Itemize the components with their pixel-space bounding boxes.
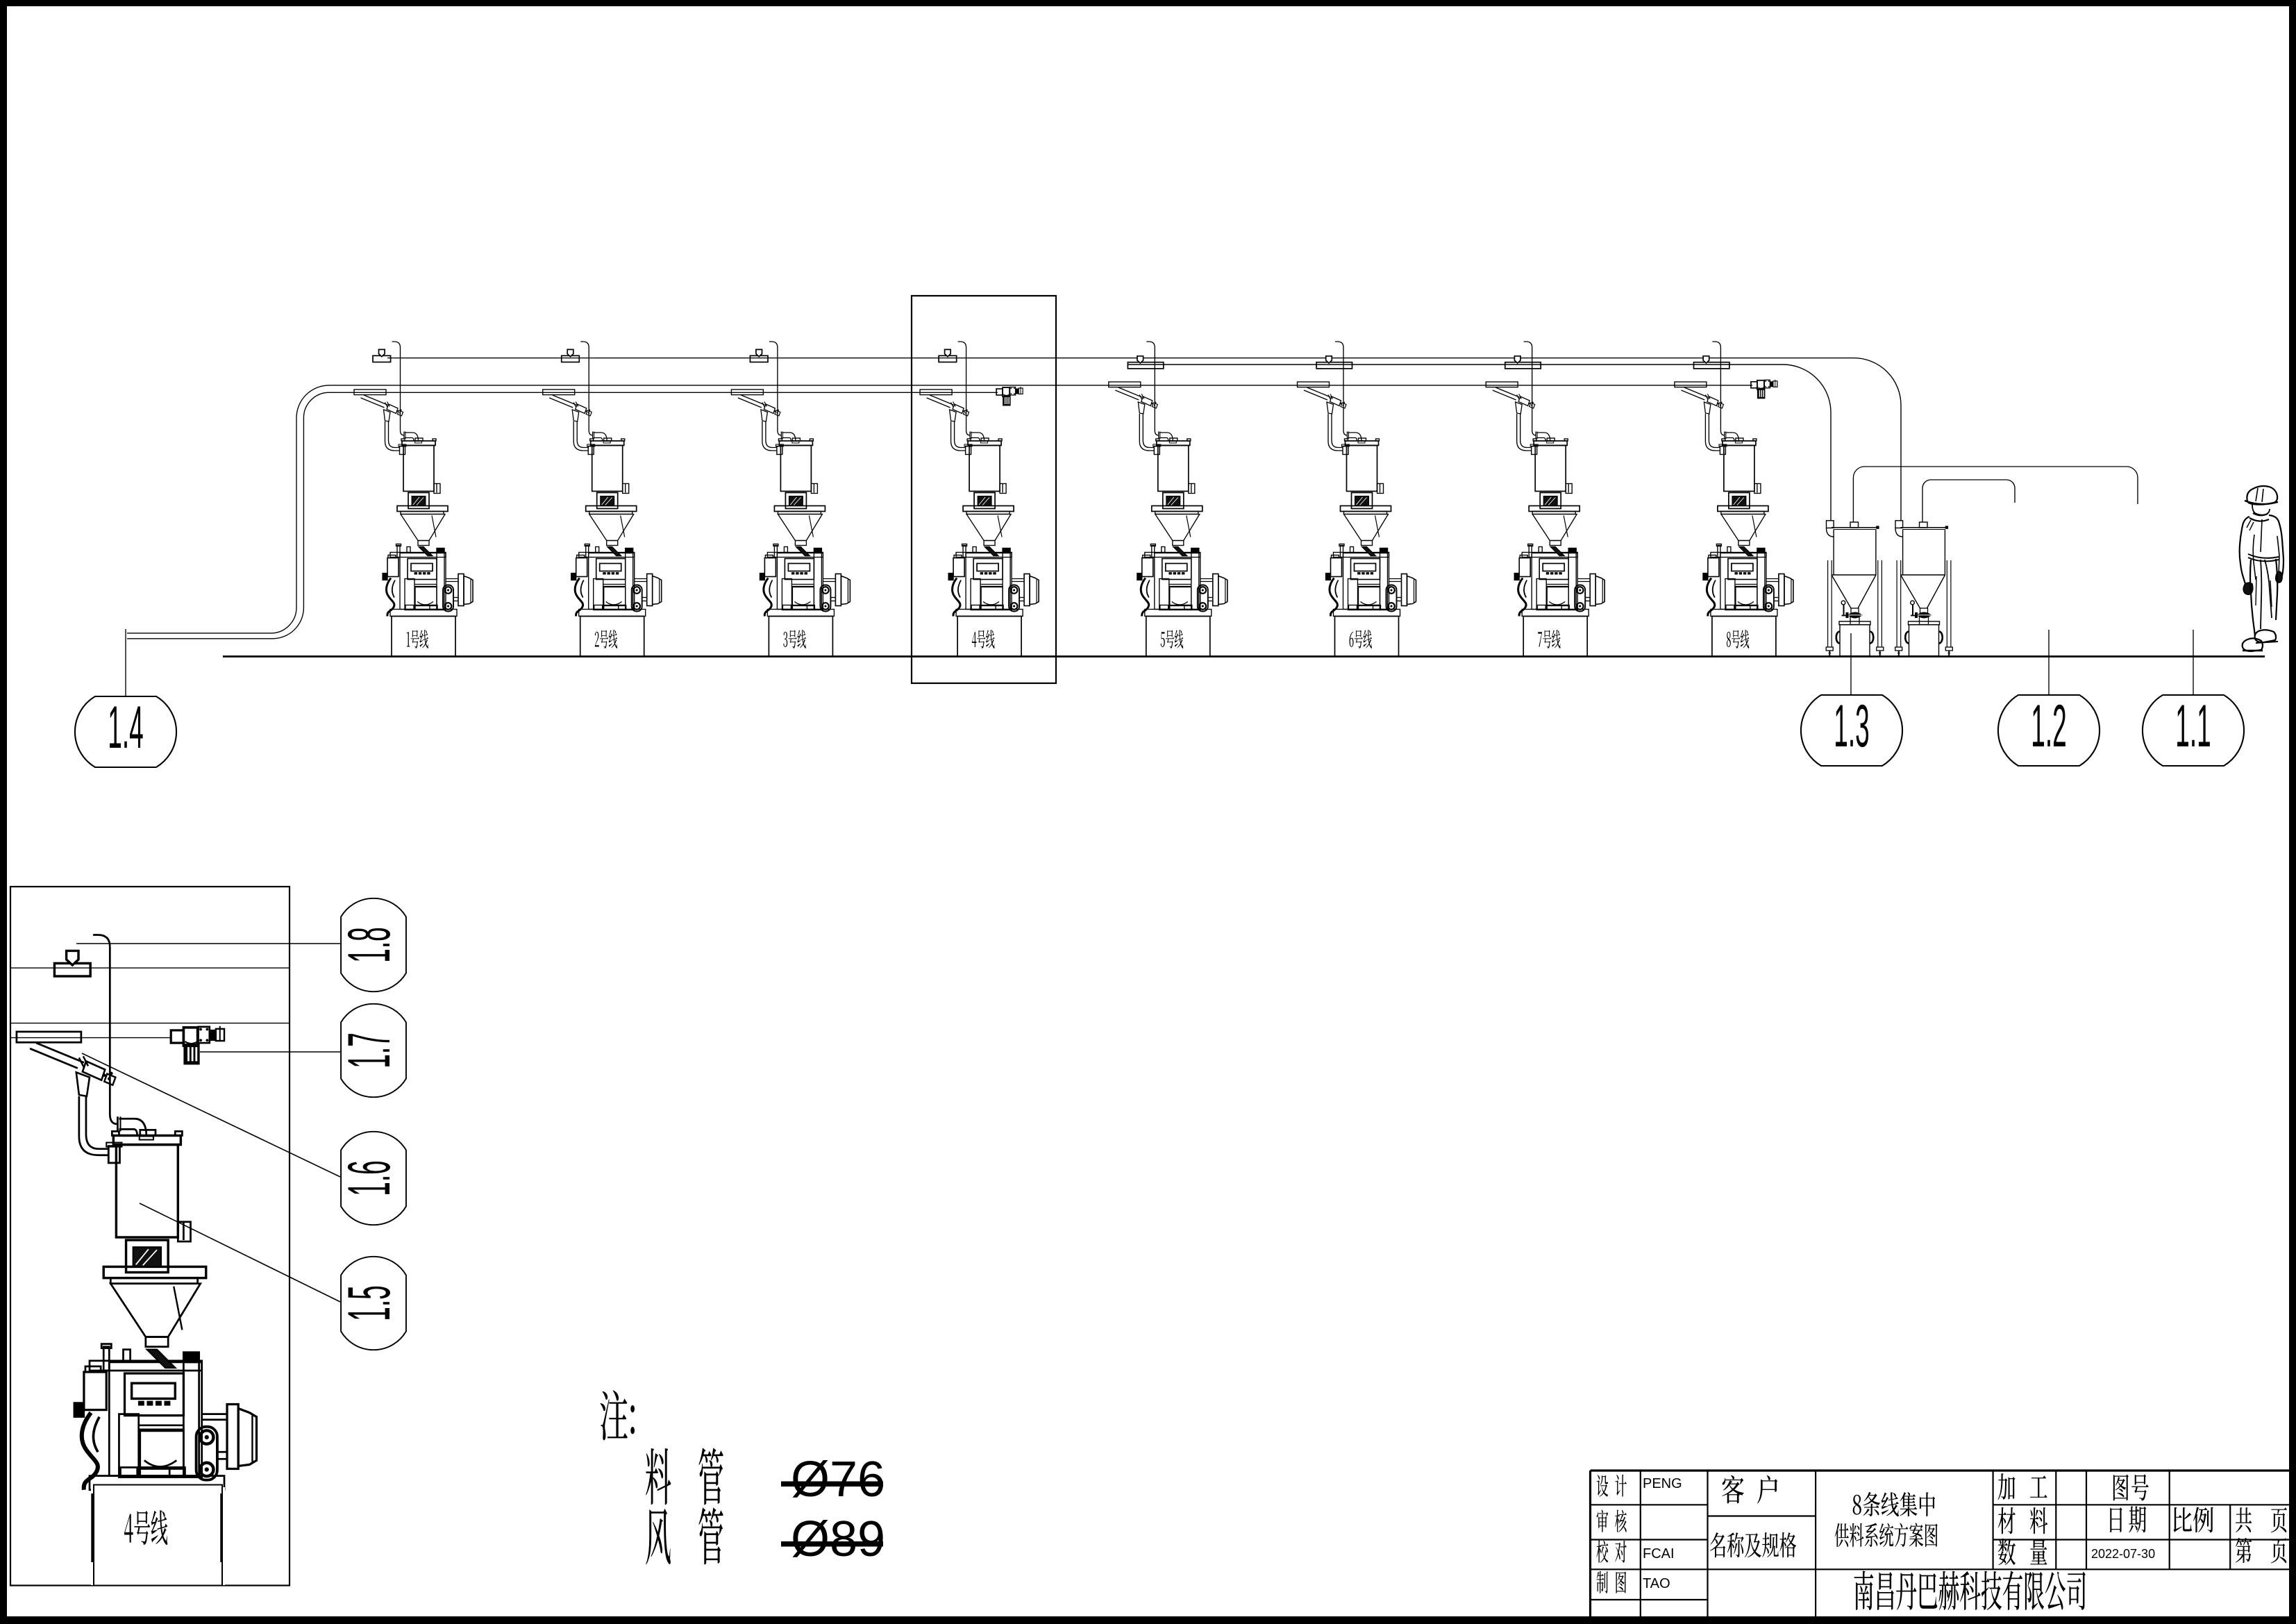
svg-text:Ø76: Ø76 [791, 1452, 885, 1507]
svg-text:1.6: 1.6 [336, 1160, 403, 1196]
svg-text:1.3: 1.3 [1834, 693, 1869, 760]
svg-text:1.4: 1.4 [108, 694, 143, 761]
svg-text:1.1: 1.1 [2175, 693, 2211, 760]
svg-text:2022-07-30: 2022-07-30 [2091, 1547, 2155, 1561]
svg-text:1.7: 1.7 [336, 1032, 403, 1068]
svg-text:FCAI: FCAI [1643, 1546, 1675, 1562]
svg-text:1.5: 1.5 [336, 1285, 403, 1321]
svg-text:1.8: 1.8 [336, 927, 403, 962]
svg-text:1.2: 1.2 [2031, 693, 2066, 760]
svg-text:Ø89: Ø89 [791, 1512, 885, 1567]
svg-text:TAO: TAO [1643, 1576, 1670, 1591]
svg-text:PENG: PENG [1643, 1476, 1682, 1491]
